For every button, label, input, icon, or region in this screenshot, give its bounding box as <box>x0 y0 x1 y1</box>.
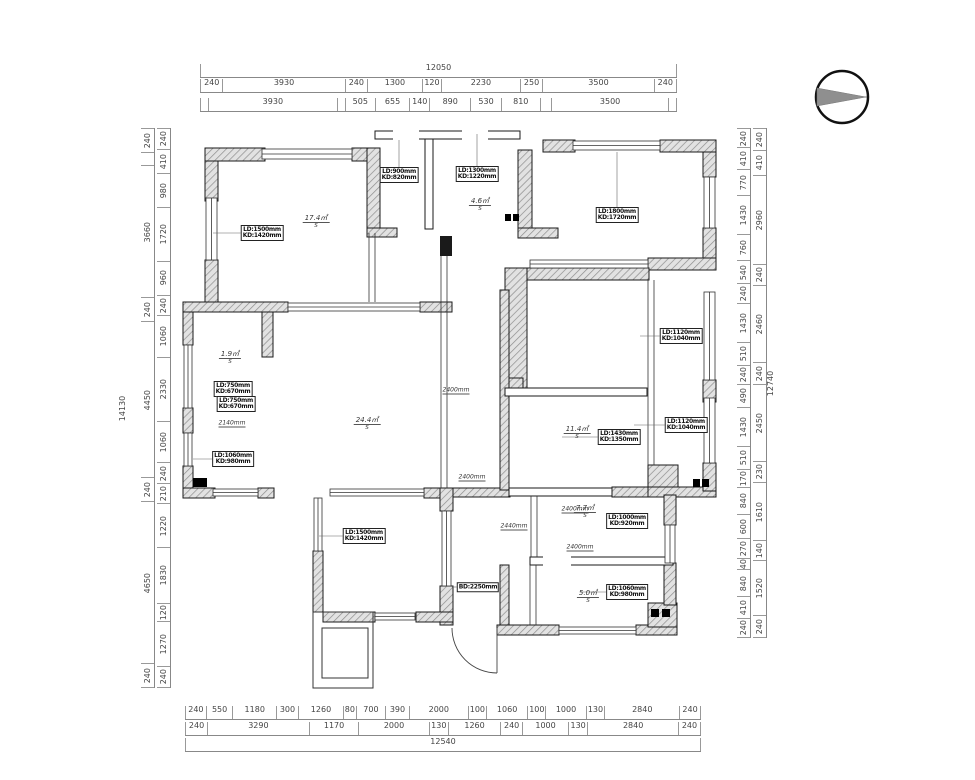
dim-value: 240 <box>144 302 152 317</box>
dim-segment: 2000 <box>359 722 429 735</box>
dim-segment: 410 <box>737 597 750 618</box>
dim-value: 240 <box>189 722 204 730</box>
dim-value: 410 <box>756 155 764 170</box>
dim-value: 1300 <box>385 79 405 87</box>
dim-segment: 240 <box>655 79 677 92</box>
dim-value: 240 <box>756 267 764 282</box>
area-label: 24.4㎡S <box>354 417 381 431</box>
area-label: 1.9㎡S <box>219 351 241 365</box>
dim-segment: 120 <box>157 604 170 623</box>
dim-top-row1: 2403930240130012022302503500240 <box>200 79 677 93</box>
dim-value: 490 <box>740 388 748 403</box>
dim-value: 410 <box>740 600 748 615</box>
room-tag: LD:750mmKD:670mm <box>214 381 253 397</box>
dim-value: 1260 <box>464 722 484 730</box>
dim-value: 700 <box>363 706 378 714</box>
dim-segment: 2460 <box>753 286 766 363</box>
dim-value: 980 <box>160 183 168 198</box>
dim-segment: 655 <box>376 98 410 111</box>
dim-segment: 1430 <box>737 408 750 447</box>
dim-segment: 240 <box>753 363 766 385</box>
dim-segment: 240 <box>185 706 207 719</box>
room-tag: LD:1000mmKD:920mm <box>606 513 648 529</box>
dim-segment <box>338 98 346 111</box>
dim-value: 140 <box>756 543 764 558</box>
wall-note: 2440mm <box>501 524 528 531</box>
room-tag: LD:900mmKD:820mm <box>380 167 419 183</box>
dim-segment: 170 <box>737 470 750 488</box>
dim-segment: 1430 <box>737 304 750 343</box>
dim-segment: 2840 <box>588 722 679 735</box>
dim-value: 120 <box>424 79 439 87</box>
dim-value: 240 <box>740 286 748 301</box>
dim-segment: 240 <box>157 463 170 484</box>
dim-value: 12050 <box>426 64 451 72</box>
dim-value: 1180 <box>245 706 265 714</box>
dim-value: 960 <box>160 270 168 285</box>
dim-segment <box>541 98 552 111</box>
dim-value: 1060 <box>497 706 517 714</box>
room-tag: LD:1060mmKD:980mm <box>212 451 254 467</box>
dim-value: 240 <box>144 482 152 497</box>
dim-segment: 490 <box>737 385 750 407</box>
dim-segment: 240 <box>157 128 170 150</box>
dim-value: 2460 <box>756 314 764 334</box>
dim-segment: 1260 <box>299 706 344 719</box>
dim-segment: 240 <box>737 366 750 385</box>
dim-value: 510 <box>740 450 748 465</box>
dim-segment: 510 <box>737 343 750 366</box>
dim-value: 1430 <box>740 205 748 225</box>
dim-right-outer: 2404102960240246024024502301610140152024… <box>753 128 767 638</box>
dim-segment: 1270 <box>157 622 170 667</box>
dim-value: 3500 <box>600 98 620 106</box>
wall-note: 2400mm <box>443 388 470 395</box>
dim-segment: 810 <box>502 98 541 111</box>
dim-value: 240 <box>756 132 764 147</box>
dim-value: 890 <box>443 98 458 106</box>
dim-value: 130 <box>588 706 603 714</box>
dim-left-total: 14130 <box>118 396 127 421</box>
dim-segment: 840 <box>737 570 750 597</box>
dim-segment: 240 <box>753 616 766 638</box>
dim-value: 2960 <box>756 210 764 230</box>
dim-segment: 240 <box>185 722 208 735</box>
dim-bottom-row1: 2405501180300126080700390200010010601001… <box>185 706 701 720</box>
dim-segment: 540 <box>737 261 750 284</box>
area-label: 17.4㎡S <box>303 215 330 229</box>
area-label: 5.0㎡S <box>577 590 599 604</box>
dim-value: 4450 <box>144 390 152 410</box>
dim-segment: 600 <box>737 515 750 539</box>
dim-value: 12540 <box>430 738 455 746</box>
dim-value: 240 <box>188 706 203 714</box>
dim-segment: 2000 <box>410 706 469 719</box>
dim-value: 240 <box>658 79 673 87</box>
dim-segment: 40 <box>737 559 750 571</box>
dim-segment: 100 <box>469 706 487 719</box>
dim-segment: 3930 <box>223 79 345 92</box>
dim-value: 655 <box>385 98 400 106</box>
dim-value: 770 <box>740 175 748 190</box>
dim-segment: 130 <box>430 722 449 735</box>
dim-value: 510 <box>740 346 748 361</box>
dim-right-total: 12740 <box>766 371 775 396</box>
dim-value: 410 <box>160 154 168 169</box>
dim-segment: 2960 <box>753 176 766 264</box>
dim-segment: 80 <box>344 706 357 719</box>
dim-value: 100 <box>529 706 544 714</box>
dim-segment: 1830 <box>157 548 170 603</box>
room-tag: LD:1800mmKD:1720mm <box>596 207 639 223</box>
dim-value: 100 <box>470 706 485 714</box>
dim-segment: 270 <box>737 539 750 559</box>
dim-segment: 410 <box>737 148 750 169</box>
dim-segment: 240 <box>737 619 750 638</box>
dim-value: 2450 <box>756 413 764 433</box>
dim-top-total: 12050 <box>200 64 677 78</box>
dim-segment: 240 <box>141 664 154 688</box>
dim-segment: 1610 <box>753 483 766 541</box>
dim-segment: 960 <box>157 262 170 296</box>
dim-value: 1270 <box>160 634 168 654</box>
dim-segment: 1520 <box>753 561 766 617</box>
dim-value: 240 <box>756 619 764 634</box>
dim-segment: 210 <box>157 484 170 504</box>
dim-segment: 1060 <box>157 316 170 357</box>
dim-value: 80 <box>345 706 355 714</box>
wall-door-gaps <box>393 130 571 566</box>
dim-value: 240 <box>160 131 168 146</box>
dim-segment: 1720 <box>157 208 170 261</box>
room-tag: LD:1300mmKD:1220mm <box>456 166 499 182</box>
dim-value: 300 <box>280 706 295 714</box>
dim-segment: 1000 <box>546 706 586 719</box>
dim-value: 240 <box>160 298 168 313</box>
balcony <box>313 612 373 688</box>
dim-segment: 390 <box>386 706 410 719</box>
dim-value: 210 <box>160 486 168 501</box>
dim-value: 3500 <box>588 79 608 87</box>
room-tag: LD:750mmKD:670mm <box>217 396 256 412</box>
dim-value: 1720 <box>160 224 168 244</box>
dim-left-inner: 2404109801720960240106023301060240210122… <box>157 128 171 688</box>
dim-segment: 3500 <box>543 79 654 92</box>
dim-segment: 1060 <box>487 706 528 719</box>
dim-value: 3930 <box>274 79 294 87</box>
dim-value: 1830 <box>160 565 168 585</box>
dim-value: 2840 <box>632 706 652 714</box>
dim-top-row2: 39305056551408905308103500 <box>200 98 677 112</box>
dim-segment: 240 <box>346 79 368 92</box>
dim-segment <box>669 98 677 111</box>
dim-segment: 240 <box>157 667 170 688</box>
dim-right-inner: 2404107701430760540240143051024049014305… <box>737 128 751 638</box>
dim-value: 240 <box>756 366 764 381</box>
dim-value: 240 <box>349 79 364 87</box>
dim-segment: 100 <box>528 706 546 719</box>
dim-value: 550 <box>212 706 227 714</box>
dim-bottom-row2: 240329011702000130126024010001302840240 <box>185 722 701 736</box>
wall-note: 2140mm <box>219 421 246 428</box>
dim-segment: 230 <box>753 462 766 483</box>
dim-segment: 2330 <box>157 358 170 423</box>
dim-value: 1430 <box>740 313 748 333</box>
dim-value: 1260 <box>311 706 331 714</box>
dim-value: 1610 <box>756 502 764 522</box>
dim-value: 2330 <box>160 379 168 399</box>
dim-value: 240 <box>160 669 168 684</box>
dim-value: 1060 <box>160 326 168 346</box>
dim-segment: 2450 <box>753 385 766 462</box>
dim-segment: 240 <box>141 478 154 502</box>
dim-value: 2230 <box>471 79 491 87</box>
dim-segment: 3930 <box>209 98 339 111</box>
dim-value: 240 <box>204 79 219 87</box>
dim-value: 505 <box>353 98 368 106</box>
dim-segment: 130 <box>569 722 588 735</box>
dim-segment: 1060 <box>157 422 170 463</box>
dim-segment: 240 <box>737 128 750 148</box>
dim-value: 40 <box>740 559 748 569</box>
dim-bottom-total: 12540 <box>185 738 701 752</box>
room-tag: LD:1120mmKD:1040mm <box>660 328 703 344</box>
dim-value: 240 <box>740 620 748 635</box>
dim-segment: 240 <box>737 284 750 303</box>
dim-segment: 770 <box>737 170 750 196</box>
dim-segment: 505 <box>346 98 376 111</box>
dim-segment: 1260 <box>449 722 501 735</box>
dim-value: 840 <box>740 493 748 508</box>
dim-segment: 700 <box>357 706 386 719</box>
dim-value: 240 <box>682 722 697 730</box>
dim-segment: 250 <box>521 79 544 92</box>
dim-value: 840 <box>740 576 748 591</box>
dim-segment: 120 <box>423 79 442 92</box>
dim-segment: 510 <box>737 447 750 470</box>
dim-segment: 2230 <box>442 79 521 92</box>
dim-value: 2000 <box>384 722 404 730</box>
dim-value: 270 <box>740 541 748 556</box>
dim-value: 1520 <box>756 578 764 598</box>
dim-value: 1000 <box>535 722 555 730</box>
dim-segment: 760 <box>737 235 750 261</box>
dim-segment: 12540 <box>185 738 701 751</box>
dim-segment: 1220 <box>157 504 170 548</box>
area-label: 4.6㎡S <box>469 198 491 212</box>
floor-plan-page: 12050 2403930240130012022302503500240 39… <box>0 0 975 780</box>
room-tag: LD:1430mmKD:1350mm <box>598 429 641 445</box>
dim-segment: 530 <box>471 98 502 111</box>
room-tag: LD:1060mmKD:980mm <box>606 584 648 600</box>
wall-note: 2400mm <box>459 475 486 482</box>
dim-value: 410 <box>740 151 748 166</box>
dim-value: 130 <box>570 722 585 730</box>
dim-left-mid: 240366024044502404650240 <box>141 128 155 688</box>
dim-value: 130 <box>431 722 446 730</box>
dim-value: 1430 <box>740 417 748 437</box>
dim-segment: 890 <box>430 98 471 111</box>
dim-value: 2840 <box>623 722 643 730</box>
dim-value: 1170 <box>324 722 344 730</box>
dim-segment: 4650 <box>141 502 154 664</box>
dim-value: 810 <box>513 98 528 106</box>
dim-segment: 1170 <box>310 722 360 735</box>
area-label: 11.4㎡S <box>564 426 591 440</box>
dim-value: 3930 <box>263 98 283 106</box>
dim-segment: 3660 <box>141 166 154 298</box>
room-tag: LD:1500mmKD:1420mm <box>241 225 284 241</box>
entry-tag: BD:2250mm <box>457 582 499 592</box>
wall-stubs <box>440 236 452 256</box>
dim-segment: 3290 <box>208 722 310 735</box>
dim-value: 230 <box>756 464 764 479</box>
dim-value: 3290 <box>248 722 268 730</box>
dim-segment: 240 <box>501 722 523 735</box>
dim-segment: 130 <box>587 706 606 719</box>
wall-note: 2400mm <box>562 507 589 514</box>
dim-segment: 300 <box>277 706 299 719</box>
dim-value: 120 <box>160 605 168 620</box>
room-tag: LD:1120mmKD:1040mm <box>665 417 708 433</box>
dim-segment: 240 <box>753 265 766 287</box>
dim-segment: 4450 <box>141 322 154 478</box>
dim-segment: 140 <box>410 98 430 111</box>
entry-door <box>452 628 497 673</box>
dim-segment: 980 <box>157 174 170 209</box>
dim-value: 240 <box>144 668 152 683</box>
dim-segment: 1000 <box>523 722 569 735</box>
door-arc <box>452 628 497 673</box>
dim-segment <box>200 98 209 111</box>
dim-segment <box>141 153 154 166</box>
dim-segment: 240 <box>141 128 154 153</box>
dim-segment: 3500 <box>552 98 670 111</box>
dim-segment: 550 <box>207 706 234 719</box>
dim-segment: 240 <box>141 298 154 322</box>
dim-value: 240 <box>740 367 748 382</box>
dim-value: 240 <box>682 706 697 714</box>
dim-value: 250 <box>524 79 539 87</box>
dim-value: 1060 <box>160 432 168 452</box>
dim-segment: 410 <box>157 150 170 174</box>
dim-segment: 240 <box>753 128 766 151</box>
dim-segment: 240 <box>680 706 701 719</box>
dim-segment: 12050 <box>200 64 677 77</box>
dim-value: 170 <box>740 471 748 486</box>
dim-value: 2000 <box>429 706 449 714</box>
dim-value: 240 <box>160 466 168 481</box>
dim-value: 1220 <box>160 516 168 536</box>
dim-segment: 2840 <box>605 706 680 719</box>
dim-value: 530 <box>478 98 493 106</box>
dim-value: 240 <box>740 131 748 146</box>
dim-value: 240 <box>504 722 519 730</box>
dim-value: 760 <box>740 240 748 255</box>
dim-value: 600 <box>740 519 748 534</box>
room-tag: LD:1500mmKD:1420mm <box>343 528 386 544</box>
dim-segment: 240 <box>679 722 701 735</box>
dim-value: 140 <box>412 98 427 106</box>
dim-segment: 240 <box>200 79 223 92</box>
dim-segment: 1180 <box>233 706 277 719</box>
dim-value: 390 <box>390 706 405 714</box>
dim-segment: 240 <box>157 296 170 317</box>
dim-segment: 140 <box>753 541 766 560</box>
dim-segment: 840 <box>737 488 750 515</box>
dim-value: 240 <box>144 133 152 148</box>
dim-value: 4650 <box>144 573 152 593</box>
north-arrow-icon <box>816 71 868 123</box>
dim-value: 540 <box>740 265 748 280</box>
dim-segment: 410 <box>753 151 766 177</box>
dim-value: 3660 <box>144 222 152 242</box>
wall-note: 2400mm <box>567 545 594 552</box>
dim-segment: 1300 <box>368 79 423 92</box>
dim-value: 1000 <box>556 706 576 714</box>
dim-segment: 1430 <box>737 196 750 235</box>
